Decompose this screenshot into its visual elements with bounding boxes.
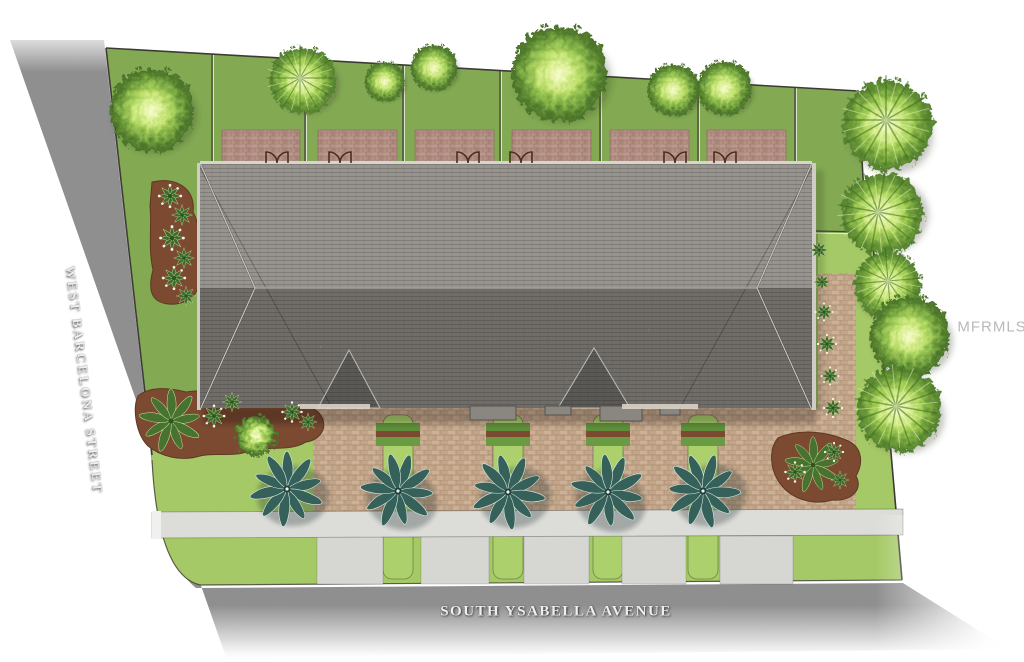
fascia-east [812,163,816,410]
fascia-west [197,163,200,410]
bright-bush [233,412,273,452]
street-label-south-ysabella: SOUTH YSABELLA AVENUE [440,604,672,621]
site-plan-illustration [0,0,1024,662]
gutter-strip-east [622,404,698,409]
mls-watermark: MFRMLS [957,319,1024,336]
fascia-north [200,161,812,164]
building-roof [197,161,816,421]
street-fade-right [875,515,1024,662]
site-plan-rendering: WEST BARCELONA STREET SOUTH YSABELLA AVE… [0,0,1024,662]
gutter-strip-west [300,404,370,409]
street-fade-top [0,26,118,72]
